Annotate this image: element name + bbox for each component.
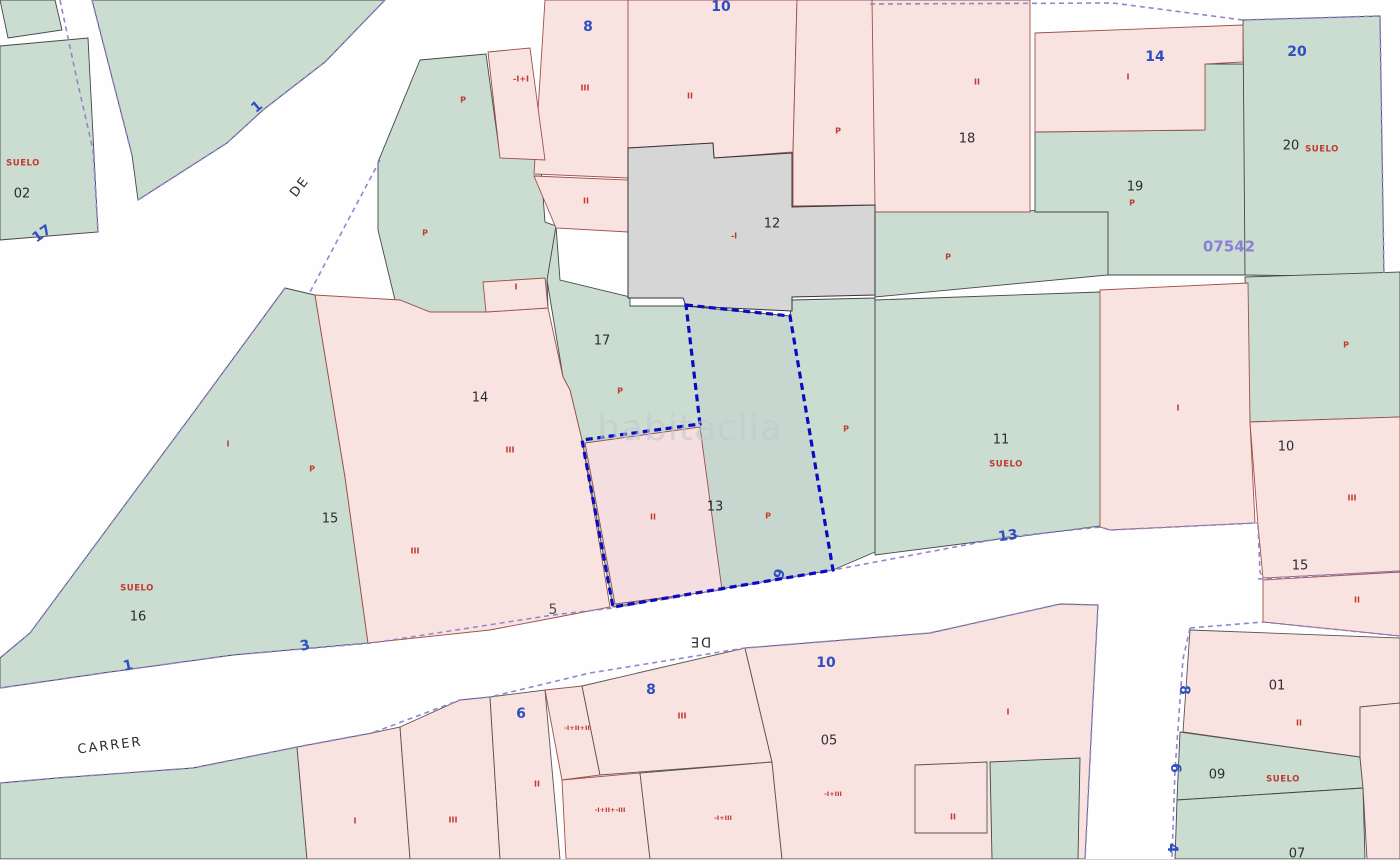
parcel-number-12: 12 [764,217,781,232]
parcel-area-right-sliver [1360,703,1400,859]
street-number-8-top: 8 [583,19,593,35]
p-label-2: P [835,127,841,136]
street-number-6: 6 [516,706,526,722]
parcel-area-10-strip [628,0,797,158]
height-code-12: -I [731,232,737,241]
parcel-area-11 [875,292,1108,555]
street-edge-diag-right [310,160,380,292]
parcel-area-bp-code2 [562,773,650,859]
parcel-area-15-strip [1263,572,1400,636]
height-code-b1: -I+II+II [564,724,590,732]
street-name-de-upper: DE [287,174,313,201]
parcel-number-02: 02 [14,187,31,202]
parcel-area-bottom-left [0,747,307,859]
parcel-area-corner [0,0,62,38]
parcel-area-bp-i [297,727,410,859]
storeys-ii-highlight: II [650,513,656,522]
storeys-ii-7: II [1296,719,1302,728]
parcel-area-10-right [1250,417,1400,578]
storeys-ii-4: II [1354,596,1360,605]
street-number-20: 20 [1287,44,1307,60]
p-label-4: P [945,253,951,262]
parcel-area-bp-code3 [640,762,782,859]
p-label-1: P [460,96,466,105]
cadastral-map: SUELO02171DE8-I+IPIIIII10PII1814I2020SUE… [0,0,1400,860]
parcel-number-17: 17 [594,334,611,349]
parcel-area-p-right [1245,272,1400,422]
suelo-label-16: SUELO [120,584,154,594]
watermark-text: habitaclia [597,408,783,449]
parcel-area-top-wedge [92,0,385,200]
parcel-number-18: 18 [959,132,976,147]
p-label-7: P [309,465,315,474]
parcel-number-09: 09 [1209,768,1226,783]
street-number-14: 14 [1145,49,1165,65]
street-name-carrer: CARRER [77,735,144,758]
p-label-9: P [843,425,849,434]
parcel-area-18 [872,0,1030,212]
storeys-iii-6: III [449,816,458,825]
parcel-area-sub-ii [915,762,987,833]
storeys-ii-1: II [687,92,693,101]
storeys-iii-3: III [411,547,420,556]
storeys-i-5: I [1007,708,1010,717]
parcel-number-15: 15 [322,512,339,527]
parcel-area-p-top [793,0,875,206]
parcel-area-02 [0,38,98,240]
parcel-area-p-mid [872,210,1108,297]
parcel-number-13: 13 [707,500,724,515]
parcel-area-bottom-green-sm [990,758,1080,859]
p-label-5: P [617,387,623,396]
suelo-label-20: SUELO [1305,145,1339,155]
parcel-number-16: 16 [130,610,147,625]
storeys-ii-5: II [534,780,540,789]
zone-code: 07542 [1203,238,1255,256]
parcel-area-07 [1175,788,1365,859]
storeys-iii-4: III [1348,494,1357,503]
parcel-area-15-16 [0,288,368,688]
suelo-label-02: SUELO [6,159,40,169]
parcel-number-14: 14 [472,391,489,406]
street-number-10-mid: 10 [816,655,836,671]
parcel-number-01: 01 [1269,679,1286,694]
storeys-iii-5: III [678,712,687,721]
storeys-iii-2: III [506,446,515,455]
street-number-15r: 15 [1292,559,1309,574]
parcel-number-19: 19 [1127,180,1144,195]
height-code-b2: -I+II+-III [595,806,626,814]
street-number-13: 13 [997,527,1019,546]
suelo-label-11: SUELO [989,460,1023,470]
street-number-10-top: 10 [711,0,731,15]
storeys-i-2: I [515,283,518,292]
parcel-number-10r: 10 [1278,440,1295,455]
storeys-ii-6: II [950,813,956,822]
parcel-number-20: 20 [1283,139,1300,154]
p-label-6: P [422,229,428,238]
height-code-top1: -I+I [513,75,529,84]
parcel-area-bp-iii [400,697,500,859]
street-number-5: 5 [549,602,558,618]
height-code-b4: -I+III [824,790,842,798]
p-label-3: P [1129,199,1135,208]
storeys-i-4: I [1177,404,1180,413]
cadastral-map-canvas: SUELO02171DE8-I+IPIIIII10PII1814I2020SUE… [0,0,1400,859]
parcel-number-05: 05 [821,734,838,749]
suelo-label-09: SUELO [1266,775,1300,785]
street-number-4-right: 4 [1164,843,1180,853]
storeys-i-1: I [1127,73,1130,82]
p-label-10: P [1343,341,1349,350]
storeys-iii-1: III [581,84,590,93]
height-code-b3: -I+III [714,814,732,822]
street-number-8-mid: 8 [646,682,656,698]
storeys-ii-3: II [583,197,589,206]
storeys-i-3: I [227,440,230,449]
street-number-8-right: 8 [1176,685,1192,695]
street-number-6-right: 6 [1167,763,1183,773]
storeys-i-6: I [354,817,357,826]
street-name-de-lower: DE [689,634,711,649]
storeys-ii-2: II [974,78,980,87]
parcel-number-11: 11 [993,433,1010,448]
p-label-8: P [765,512,771,521]
parcel-number-07: 07 [1289,847,1306,860]
